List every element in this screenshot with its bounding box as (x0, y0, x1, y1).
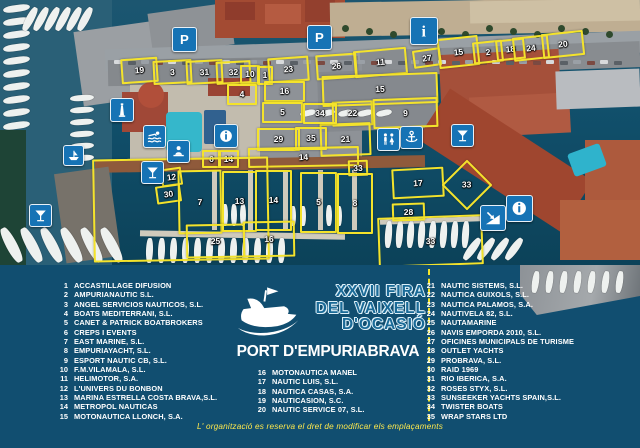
marker-number: 11 (376, 58, 386, 67)
marker-number: 5 (280, 108, 285, 117)
legend-item-number: 10 (46, 365, 68, 374)
legend-item-33: 33SUNSEEKER YACHTS SPAIN,S.L. (413, 393, 633, 402)
map-marker-34: 34 (303, 103, 337, 124)
boat-lift-icon (63, 145, 84, 166)
marker-number: 21 (341, 135, 351, 144)
map-terrain (560, 200, 640, 260)
legend-item-number: 12 (46, 384, 68, 393)
legend-item-name: MARINA ESTRELLA COSTA BRAVA,S.L. (74, 393, 217, 402)
anchor-icon (400, 126, 423, 149)
legend-item-30: 30RAID 1969 (413, 365, 633, 374)
marker-number: 32 (229, 68, 239, 77)
marker-number: 17 (413, 179, 423, 188)
legend-item-name: L'UNIVERS DU BONBON (74, 384, 163, 393)
legend-item-12: 12L'UNIVERS DU BONBON (46, 384, 266, 393)
swimmer-icon (143, 125, 166, 148)
aerial-map: 1933132101232611271521824201522921416534… (0, 0, 640, 265)
legend-item-24: 24NAUTIVELA 82, S.L. (413, 309, 633, 318)
legend-item-5: 5CANET & PATRICK BOATBROKERS (46, 318, 266, 327)
legend-item-number: 34 (413, 402, 435, 411)
disclaimer-note: L' organització es reserva el dret de mo… (60, 422, 580, 431)
legend-item-name: MOTONAUTICA LLONCH, S.A. (74, 412, 183, 421)
venue-name: PORT D'EMPURIABRAVA (228, 343, 428, 361)
legend-item-3: 3ANGEL SERVICIOS NAUTICOS, S.L. (46, 300, 266, 309)
legend-item-name: NAVIS EMPORDA 2010, S.L. (441, 328, 541, 337)
legend-item-number: 2 (46, 290, 68, 299)
car (560, 61, 568, 65)
marker-number: 35 (306, 134, 315, 143)
legend-item-number: 33 (413, 393, 435, 402)
legend-item-14: 14METROPOL NAUTICAS (46, 402, 266, 411)
marker-number: 9 (403, 109, 408, 118)
car (600, 60, 608, 64)
marker-number: 4 (240, 90, 245, 99)
marker-number: 24 (526, 43, 536, 52)
legend-item-27: 27OFICINES MUNICIPALS DE TURISME (413, 337, 633, 346)
marker-number: 2 (485, 48, 491, 57)
map-marker-5: 5 (300, 172, 337, 233)
map-marker-25: 25 (186, 223, 246, 258)
legend-item-number: 15 (46, 412, 68, 421)
legend-item-name: ACCASTILLAGE DIFUSION (74, 281, 171, 290)
event-title-line3: D'OCASIÓ (288, 317, 426, 334)
car (506, 61, 514, 65)
lighthouse-icon (110, 98, 134, 122)
legend-item-name: NAUTIC LUIS, S.L. (272, 377, 338, 386)
marker-number: 31 (200, 68, 210, 77)
legend-item-32: 32ROSES STYX, S.L. (413, 384, 633, 393)
map-terrain (265, 4, 301, 24)
legend-item-name: AMPURIANAUTIC S.L. (74, 290, 154, 299)
legend-item-13: 13MARINA ESTRELLA COSTA BRAVA,S.L. (46, 393, 266, 402)
parking-icon: P (307, 25, 332, 50)
legend-item-name: SUNSEEKER YACHTS SPAIN,S.L. (441, 393, 561, 402)
legend-item-26: 26NAVIS EMPORDA 2010, S.L. (413, 328, 633, 337)
tree (510, 28, 517, 35)
legend-item-name: OFICINES MUNICIPALS DE TURISME (441, 337, 574, 346)
marker-number: 1 (263, 71, 268, 80)
legend-item-name: ANGEL SERVICIOS NAUTICOS, S.L. (74, 300, 203, 309)
map-marker-8: 8 (337, 173, 373, 234)
cocktail-icon (141, 161, 164, 184)
legend-item-35: 35WRAP STARS LTD (413, 412, 633, 421)
map-marker-16: 16 (243, 221, 296, 258)
marker-number: 27 (422, 53, 433, 63)
cocktail-icon (451, 124, 474, 147)
legend-item-name: HELIMOTOR, S.A. (74, 374, 138, 383)
car (587, 61, 595, 65)
map-marker-16: 16 (264, 81, 305, 102)
legend-item-name: RIO IBERICA, S.A. (441, 374, 507, 383)
legend-item-10: 10F.M.VILAMALA, S.L. (46, 365, 266, 374)
legend-item-28: 28OUTLET YACHTS (413, 346, 633, 355)
legend-item-name: CREPS I EVENTS (74, 328, 137, 337)
legend-item-29: 29PROBRAVA, S.L. (413, 356, 633, 365)
marker-number: 14 (269, 196, 278, 205)
marker-number: 8 (353, 199, 358, 208)
svg-text:P: P (180, 32, 189, 47)
legend-item-name: TWISTER BOATS (441, 402, 503, 411)
event-title-line2: DEL VAIXELL (288, 301, 426, 318)
legend-item-1: 1ACCASTILLAGE DIFUSION (46, 281, 266, 290)
map-terrain (225, 2, 255, 20)
marker-number: 33 (462, 181, 471, 190)
marker-number: 25 (211, 237, 221, 246)
legend-item-name: EMPURIAYACHT, S.L. (74, 346, 151, 355)
legend-item-23: 23NAUTICA PALAMOS, S.A. (413, 300, 633, 309)
marker-number: 34 (315, 109, 324, 118)
marker-number: 14 (299, 153, 309, 162)
marker-number: 26 (331, 62, 341, 71)
marker-number: 33 (353, 164, 363, 173)
legend-item-11: 11HELIMOTOR, S.A. (46, 374, 266, 383)
marker-number: 15 (375, 85, 385, 94)
tree (342, 25, 349, 32)
legend-column-3: 21NAUTIC SISTEMS, S.L.22NAUTICA GUIXOLS,… (413, 281, 633, 421)
legend-item-number: 6 (46, 328, 68, 337)
legend-item-number: 16 (244, 368, 266, 377)
marker-number: 28 (404, 208, 414, 217)
legend-item-number: 9 (46, 356, 68, 365)
legend-item-name: F.M.VILAMALA, S.L. (74, 365, 146, 374)
svg-text:P: P (315, 30, 324, 45)
legend-item-2: 2AMPURIANAUTIC S.L. (46, 290, 266, 299)
tree (606, 31, 613, 38)
legend-item-name: NAUTAMARINE (441, 318, 497, 327)
legend-item-name: BOATS MEDITERRANI, S.L. (74, 309, 173, 318)
parking-icon: P (172, 27, 197, 52)
marker-number: 29 (274, 135, 283, 144)
legend-item-number: 17 (244, 377, 266, 386)
port-map-poster: 1933132101232611271521824201522921416534… (0, 0, 640, 448)
map-marker-23: 23 (267, 56, 310, 84)
legend-item-name: RAID 1969 (441, 365, 478, 374)
marker-number: 16 (264, 235, 274, 244)
marker-number: 22 (348, 109, 358, 118)
legend-item-name: PROBRAVA, S.L. (441, 356, 501, 365)
map-marker-4: 4 (227, 84, 257, 105)
legend-item-name: CANET & PATRICK BOATBROKERS (74, 318, 203, 327)
legend-item-number: 20 (244, 405, 266, 414)
legend-item-21: 21NAUTIC SISTEMS, S.L. (413, 281, 633, 290)
marker-number: 23 (283, 65, 293, 74)
legend-item-number: 4 (46, 309, 68, 318)
car (533, 61, 541, 65)
info-circle-icon (506, 195, 533, 222)
car (614, 61, 622, 65)
marker-number: 13 (235, 197, 244, 206)
marker-number: 5 (316, 198, 321, 207)
legend-item-name: ROSES STYX, S.L. (441, 384, 508, 393)
legend-item-number: 11 (46, 374, 68, 383)
legend-item-31: 31RIO IBERICA, S.A. (413, 374, 633, 383)
legend-panel: 1ACCASTILLAGE DIFUSION2AMPURIANAUTIC S.L… (0, 265, 640, 448)
legend-item-number: 7 (46, 337, 68, 346)
legend-item-6: 6CREPS I EVENTS (46, 328, 266, 337)
marker-number: 16 (280, 87, 289, 96)
legend-item-number: 3 (46, 300, 68, 309)
legend-item-name: OUTLET YACHTS (441, 346, 504, 355)
legend-item-number: 14 (46, 402, 68, 411)
legend-item-number: 31 (413, 374, 435, 383)
reception-icon (167, 140, 190, 163)
marker-number: 19 (134, 66, 144, 75)
marker-number: 7 (198, 198, 203, 207)
tree (486, 25, 493, 32)
legend-item-number: 19 (244, 396, 266, 405)
map-marker-9: 9 (372, 97, 438, 129)
map-terrain (555, 69, 640, 110)
legend-item-name: MOTONAUTICA MANEL (272, 368, 357, 377)
map-marker-5: 5 (262, 102, 303, 123)
legend-item-25: 25NAUTAMARINE (413, 318, 633, 327)
legend-item-34: 34TWISTER BOATS (413, 402, 633, 411)
legend-item-number: 13 (46, 393, 68, 402)
map-terrain (138, 82, 164, 108)
car (546, 60, 554, 64)
marker-number: 10 (245, 70, 254, 79)
legend-item-name: NAUTICA PALAMOS, S.A. (441, 300, 533, 309)
map-marker-17: 17 (391, 167, 444, 200)
legend-item-number: 1 (46, 281, 68, 290)
legend-item-number: 18 (244, 387, 266, 396)
map-marker-20: 20 (541, 30, 585, 59)
svg-text:i: i (422, 24, 427, 41)
marker-number: 3 (170, 68, 175, 77)
legend-item-number: 30 (413, 365, 435, 374)
legend-item-number: 32 (413, 384, 435, 393)
tree (390, 31, 397, 38)
map-terrain (470, 0, 640, 23)
marker-number: 15 (453, 47, 463, 56)
legend-item-name: METROPOL NAUTICAS (74, 402, 158, 411)
event-title: XXVII FIRA DEL VAIXELL D'OCASIÓ (288, 284, 426, 334)
wc-icon (377, 128, 400, 151)
info-icon: i (410, 17, 438, 45)
tree (366, 28, 373, 35)
legend-item-name: NAUTIC SISTEMS, S.L. (441, 281, 523, 290)
cocktail-icon (29, 204, 52, 227)
info-circle-icon (214, 124, 238, 148)
tree (438, 28, 445, 35)
slipway-icon (480, 205, 506, 231)
legend-item-number: 5 (46, 318, 68, 327)
legend-item-name: WRAP STARS LTD (441, 412, 507, 421)
legend-item-15: 15MOTONAUTICA LLONCH, S.A. (46, 412, 266, 421)
legend-item-name: NAUTICASION, S.C. (272, 396, 344, 405)
event-title-line1: XXVII FIRA (288, 284, 426, 301)
car (573, 60, 581, 64)
legend-item-name: ESPORT NAUTIC CB, S.L. (74, 356, 167, 365)
legend-item-name: NAUTICA GUIXOLS, S.L. (441, 290, 529, 299)
legend-item-number: 35 (413, 412, 435, 421)
legend-item-name: NAUTICA CASAS, S.A. (272, 387, 353, 396)
legend-item-number: 8 (46, 346, 68, 355)
marker-number: 33 (426, 237, 436, 246)
marker-number: 20 (558, 40, 568, 49)
legend-item-4: 4BOATS MEDITERRANI, S.L. (46, 309, 266, 318)
legend-item-name: NAUTIVELA 82, S.L. (441, 309, 513, 318)
legend-item-name: NAUTIC SERVICE 07, S.L. (272, 405, 365, 414)
legend-item-name: EAST MARINE, S.L. (74, 337, 144, 346)
legend-item-22: 22NAUTICA GUIXOLS, S.L. (413, 290, 633, 299)
map-marker-33: 33 (377, 214, 484, 265)
